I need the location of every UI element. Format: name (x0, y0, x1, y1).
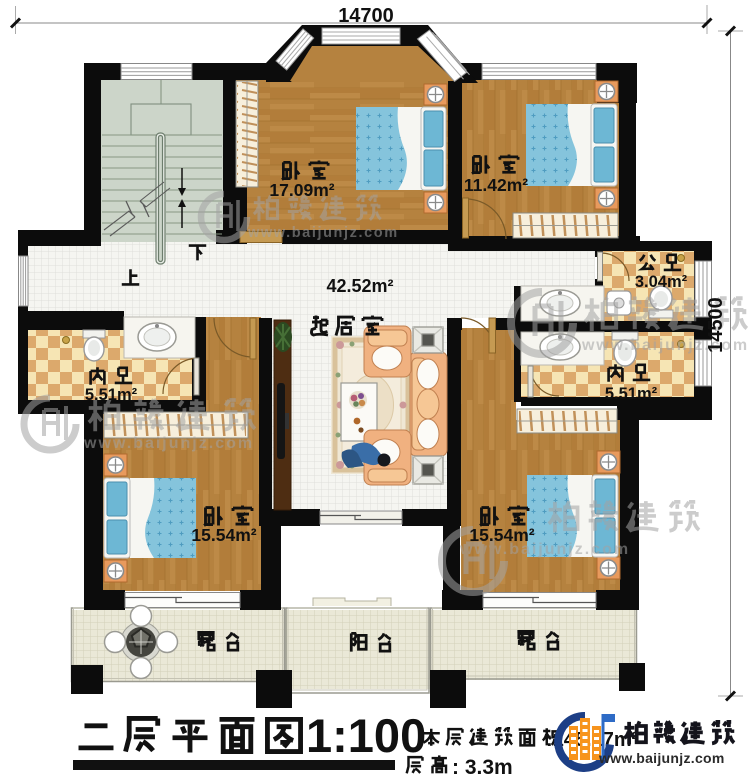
svg-text:15.54m²: 15.54m² (469, 525, 534, 545)
svg-text:42.52m²: 42.52m² (326, 276, 393, 296)
svg-text:www.baijunjz.com: www.baijunjz.com (83, 435, 254, 452)
svg-text:3.04m²: 3.04m² (635, 273, 688, 291)
svg-text:www.baijunjz.com: www.baijunjz.com (598, 750, 725, 766)
svg-text:17.09m²: 17.09m² (269, 180, 334, 200)
svg-text:5.51m²: 5.51m² (605, 385, 658, 403)
svg-text:www.baijunjz.com: www.baijunjz.com (247, 225, 399, 241)
svg-text:11.42m²: 11.42m² (464, 175, 528, 195)
svg-text:1:100: 1:100 (306, 709, 426, 762)
svg-text:14700: 14700 (338, 5, 394, 27)
svg-text:: 3.3m: : 3.3m (452, 756, 513, 779)
svg-text:15.54m²: 15.54m² (191, 525, 256, 545)
svg-text:5.51m²: 5.51m² (85, 386, 138, 404)
svg-text:14500: 14500 (705, 297, 727, 353)
